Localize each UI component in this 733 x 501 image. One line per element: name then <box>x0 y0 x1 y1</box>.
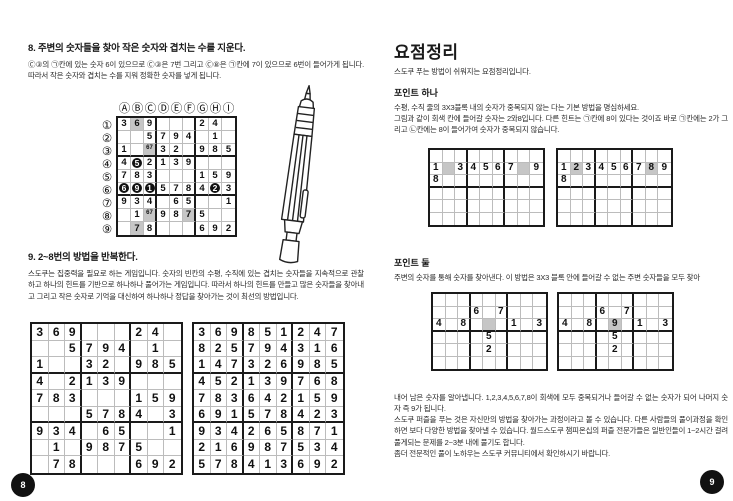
sudoku-cell: 5 <box>131 440 148 457</box>
sudoku-cell: 8 <box>310 357 327 374</box>
sudoku-cell <box>496 332 509 345</box>
point1-line1: 수평, 수직 줄의 3X3블록 내의 숫자가 중복되지 않는 다는 기본 방법을… <box>394 102 728 113</box>
sudoku-cell: 6 <box>621 163 634 176</box>
sudoku-cell <box>533 332 546 345</box>
sudoku-cell <box>533 294 546 307</box>
sudoku-cell: 6 <box>98 423 115 440</box>
sudoku-cell: 4 <box>148 324 165 341</box>
sudoku-cell <box>446 294 459 307</box>
sudoku-cell <box>633 200 646 213</box>
sudoku-cell <box>572 332 585 345</box>
sudoku-cell: 1 <box>148 341 165 358</box>
sudoku-cell: 8 <box>194 341 211 358</box>
sudoku-cell <box>82 324 99 341</box>
sudoku-cell: 4 <box>227 423 244 440</box>
sudoku-cell: 6 <box>211 324 228 341</box>
sudoku-cell <box>583 213 596 226</box>
sudoku-cell <box>658 150 671 163</box>
sudoku-cell: 9 <box>260 341 277 358</box>
sudoku-cell <box>98 456 115 473</box>
sudoku-cell <box>558 213 571 226</box>
sudoku-cell <box>118 131 131 144</box>
sudoku-cell: 4 <box>32 374 49 391</box>
sudoku-cell <box>621 213 634 226</box>
sudoku-cell <box>508 357 521 370</box>
sudoku-cell <box>32 341 49 358</box>
sudoku-cell: 8 <box>49 390 66 407</box>
sudoku-cell <box>559 307 572 320</box>
solved-number-disc: 6 <box>119 183 129 193</box>
sudoku-cell <box>584 294 597 307</box>
sudoku-cell <box>82 423 99 440</box>
sudoku-cell: 7 <box>32 390 49 407</box>
sudoku-cell <box>647 307 660 320</box>
sudoku-cell: 5 <box>260 324 277 341</box>
sudoku-cell <box>634 294 647 307</box>
sudoku-cell: 6 <box>471 307 484 320</box>
sudoku-cell: 4 <box>211 357 228 374</box>
sudoku-cell: 3 <box>277 456 294 473</box>
sudoku-cell <box>32 440 49 457</box>
sudoku-cell: 6 <box>277 357 294 374</box>
sudoku-cell <box>433 357 446 370</box>
sudoku-cell <box>533 357 546 370</box>
sudoku-cell <box>608 188 621 201</box>
sudoku-cell: 3 <box>583 163 596 176</box>
sudoku-cell <box>98 390 115 407</box>
sudoku-cell: 2 <box>98 357 115 374</box>
sudoku-cell <box>157 222 170 235</box>
sudoku-cell <box>455 200 468 213</box>
sudoku-cell: 8 <box>293 423 310 440</box>
sudoku-cell: 6 <box>131 456 148 473</box>
sudoku-cell <box>647 294 660 307</box>
sudoku-cell: 1 <box>634 319 647 332</box>
sudoku-cell <box>596 188 609 201</box>
sudoku-cell <box>508 344 521 357</box>
sudoku-cell <box>508 294 521 307</box>
sudoku-cell <box>609 307 622 320</box>
sudoku-cell <box>433 332 446 345</box>
sudoku-cell <box>521 307 534 320</box>
sudoku-cell: 1 <box>131 390 148 407</box>
sudoku-cell: 8 <box>211 390 228 407</box>
sudoku-cell <box>596 175 609 188</box>
sudoku-cell: 4 <box>115 341 132 358</box>
sudoku-cell <box>115 390 132 407</box>
sudoku-cell <box>148 440 165 457</box>
sudoku-cell: 7 <box>310 423 327 440</box>
sudoku-cell <box>443 163 456 176</box>
sudoku-cell: 9 <box>530 163 543 176</box>
sudoku-cell <box>634 344 647 357</box>
sudoku-cell <box>49 407 66 424</box>
sudoku-cell <box>572 344 585 357</box>
sudoku-cell <box>621 150 634 163</box>
sudoku-cell <box>82 390 99 407</box>
sudoku-cell <box>65 357 82 374</box>
sudoku-cell: 5 <box>211 374 228 391</box>
sudoku-cell: 4 <box>183 131 196 144</box>
sudoku-cell <box>597 294 610 307</box>
sudoku-cell: 2 <box>164 456 181 473</box>
sudoku-cell <box>518 175 531 188</box>
sudoku-cell: 8 <box>244 324 261 341</box>
sudoku-cell: 7 <box>260 407 277 424</box>
sudoku-cell: 5 <box>293 440 310 457</box>
sudoku-cell <box>572 319 585 332</box>
sudoku-cell <box>608 150 621 163</box>
sudoku-cell <box>49 357 66 374</box>
sudoku-cell <box>446 319 459 332</box>
sudoku-cell: 5 <box>277 423 294 440</box>
sudoku-cell <box>131 341 148 358</box>
sudoku-cell: 5 <box>227 341 244 358</box>
sudoku-cell: 1 <box>277 324 294 341</box>
sudoku-cell: 1 <box>49 440 66 457</box>
sudoku-cell: 7 <box>115 440 132 457</box>
sudoku-cell <box>458 357 471 370</box>
sudoku-cell <box>559 357 572 370</box>
pencil-illustration <box>246 83 350 269</box>
sudoku-cell: 9 <box>148 456 165 473</box>
row-header: ⑨ <box>100 222 114 235</box>
sudoku-cell: 9 <box>196 144 209 157</box>
sudoku-cell: 9 <box>115 374 132 391</box>
practice-puzzle-grid: 3692457941132985421397831595784393465119… <box>30 322 183 475</box>
sudoku-cell: 6 <box>170 196 183 209</box>
sudoku-cell <box>118 209 131 222</box>
sudoku-cell: 9 <box>194 423 211 440</box>
sudoku-cell <box>183 222 196 235</box>
sudoku-cell <box>148 407 165 424</box>
sudoku-cell: 4 <box>293 407 310 424</box>
sudoku-cell: 4 <box>260 390 277 407</box>
row-header: ③ <box>100 144 114 157</box>
sudoku-cell <box>518 150 531 163</box>
sudoku-cell: 2 <box>131 324 148 341</box>
sudoku-cell: 3 <box>164 407 181 424</box>
sudoku-cell: 3 <box>131 196 144 209</box>
sudoku-cell <box>115 324 132 341</box>
sudoku-cell: 1 <box>157 157 170 170</box>
sudoku-cell <box>480 150 493 163</box>
sudoku-cell <box>622 332 635 345</box>
sudoku-cell <box>433 344 446 357</box>
sudoku-cell <box>468 175 481 188</box>
sudoku-cell <box>493 213 506 226</box>
sudoku-cell: 9 <box>164 390 181 407</box>
sudoku-cell: 6 <box>196 222 209 235</box>
sudoku-cell: 1 <box>222 196 235 209</box>
pencil-mark: 67 <box>144 210 155 216</box>
sudoku-cell: 4 <box>118 157 131 170</box>
section9-heading: 9. 2~8번의 방법을 반복한다. <box>28 249 138 263</box>
sudoku-cell: 8 <box>115 407 132 424</box>
sudoku-cell <box>583 200 596 213</box>
sudoku-cell <box>518 200 531 213</box>
sudoku-cell: 8 <box>326 374 343 391</box>
sudoku-cell: 2 <box>222 222 235 235</box>
sudoku-cell: 9 <box>144 118 157 131</box>
sudoku-cell <box>521 332 534 345</box>
sudoku-cell <box>646 175 659 188</box>
solution-grid-table: 3698512478257943161473269854521397687836… <box>192 322 345 475</box>
sudoku-cell <box>209 196 222 209</box>
sudoku-cell: 4 <box>131 407 148 424</box>
sudoku-cell: 9 <box>326 390 343 407</box>
sudoku-cell <box>521 357 534 370</box>
grid-column-headers: ⒶⒷⒸⒹⒺⒻⒼⒽⒾ <box>116 103 237 115</box>
sudoku-cell <box>530 213 543 226</box>
sudoku-cell <box>596 213 609 226</box>
sudoku-cell: 1 <box>196 170 209 183</box>
sudoku-cell: 8 <box>277 407 294 424</box>
sudoku-cell <box>633 175 646 188</box>
sudoku-cell: 7 <box>227 357 244 374</box>
point1-grid-after: 1234567898 <box>556 148 673 227</box>
sudoku-cell: 9 <box>277 374 294 391</box>
sudoku-cell: 3 <box>310 440 327 457</box>
column-header: Ⓖ <box>196 103 209 115</box>
sudoku-cell: 8 <box>209 144 222 157</box>
sudoku-cell <box>32 407 49 424</box>
row-header: ② <box>100 131 114 144</box>
sudoku-cell <box>446 307 459 320</box>
sudoku-cell: 9 <box>211 407 228 424</box>
sudoku-cell: 9 <box>98 341 115 358</box>
column-header: Ⓓ <box>157 103 170 115</box>
sudoku-cell: 1 <box>244 374 261 391</box>
sudoku-cell <box>621 188 634 201</box>
sudoku-cell <box>505 188 518 201</box>
sudoku-cell: 9 <box>209 222 222 235</box>
sudoku-cell: 3 <box>82 357 99 374</box>
point2-body: 주변의 숫자를 통해 숫자를 찾아낸다. 이 방법은 3X3 블록 안에 들어갈… <box>394 272 728 283</box>
sudoku-cell <box>446 357 459 370</box>
sudoku-cell <box>493 175 506 188</box>
sudoku-cell: 1 <box>131 209 144 222</box>
point2-grid-after-table: 674891352 <box>557 292 674 371</box>
sudoku-cell: 3 <box>32 324 49 341</box>
sudoku-cell <box>608 175 621 188</box>
sudoku-cell: 2 <box>609 344 622 357</box>
sudoku-cell <box>646 213 659 226</box>
sudoku-cell: 8 <box>584 319 597 332</box>
sudoku-cell <box>646 150 659 163</box>
sudoku-cell <box>496 344 509 357</box>
sudoku-cell: 6 <box>293 456 310 473</box>
sudoku-cell <box>170 222 183 235</box>
sudoku-cell: 4 <box>194 374 211 391</box>
sudoku-cell <box>505 150 518 163</box>
sudoku-cell: 5 <box>164 357 181 374</box>
sudoku-cell <box>468 150 481 163</box>
sudoku-cell <box>222 131 235 144</box>
sudoku-cell <box>480 213 493 226</box>
sudoku-cell <box>458 294 471 307</box>
sudoku-cell: 9 <box>131 183 144 196</box>
sudoku-cell <box>480 200 493 213</box>
sudoku-cell: 1 <box>260 456 277 473</box>
point2-grid-after: 674891352 <box>557 292 674 371</box>
sudoku-cell: 9 <box>131 357 148 374</box>
sudoku-cell <box>647 344 660 357</box>
sudoku-cell: 6 <box>227 440 244 457</box>
sudoku-cell <box>646 188 659 201</box>
sudoku-cell <box>458 332 471 345</box>
sudoku-cell <box>115 456 132 473</box>
sudoku-cell <box>518 213 531 226</box>
solution-grid: 3698512478257943161473269854521397687836… <box>192 322 345 475</box>
sudoku-cell <box>521 294 534 307</box>
sudoku-cell: 2 <box>196 118 209 131</box>
sudoku-cell <box>659 357 672 370</box>
sudoku-cell <box>458 307 471 320</box>
sudoku-cell <box>597 319 610 332</box>
pencil-mark: 67 <box>144 145 155 151</box>
sudoku-cell <box>622 357 635 370</box>
closing-paragraph-2: 스도쿠 퍼즐을 푸는 것은 자신만의 방법을 찾아가는 과정이라고 볼 수 있습… <box>394 414 728 448</box>
sudoku-cell <box>508 307 521 320</box>
sudoku-cell: 2 <box>326 456 343 473</box>
sudoku-cell <box>468 213 481 226</box>
sudoku-cell <box>183 144 196 157</box>
sudoku-cell <box>446 332 459 345</box>
sudoku-cell: 2 <box>277 390 294 407</box>
sudoku-cell: 5 <box>609 332 622 345</box>
sudoku-cell <box>164 324 181 341</box>
sudoku-cell <box>505 175 518 188</box>
sudoku-cell: 7 <box>622 307 635 320</box>
sudoku-cell <box>634 307 647 320</box>
sudoku-cell <box>183 118 196 131</box>
section8-body: Ⓒ③의 ㉠칸에 있는 숫자 6이 있으므로 Ⓒ③은 7번 그리고 Ⓒ⑧은 ㉠칸에… <box>28 59 364 82</box>
labeled-example-grid-table: 3692457941167329854521397831596915784239… <box>116 116 237 237</box>
point1-grid-before-table: 13456798 <box>428 148 545 227</box>
sudoku-cell: 2 <box>227 374 244 391</box>
sudoku-cell <box>131 374 148 391</box>
solved-number-disc: 9 <box>132 183 142 193</box>
sudoku-cell <box>659 344 672 357</box>
sudoku-cell <box>533 344 546 357</box>
sudoku-cell <box>647 357 660 370</box>
sudoku-cell: 9 <box>157 209 170 222</box>
closing-paragraph-3: 좀더 전문적인 풀이 노하우는 스도쿠 커뮤니티에서 확인하시기 바랍니다. <box>394 448 728 459</box>
sudoku-cell <box>658 213 671 226</box>
practice-puzzle-grid-table: 3692457941132985421397831595784393465119… <box>30 322 183 475</box>
column-header: Ⓔ <box>170 103 183 115</box>
sudoku-cell <box>518 163 531 176</box>
sudoku-cell: 1 <box>194 357 211 374</box>
sudoku-cell: 3 <box>326 407 343 424</box>
sudoku-cell <box>521 319 534 332</box>
sudoku-cell: 7 <box>194 390 211 407</box>
sudoku-cell <box>471 332 484 345</box>
sudoku-cell <box>658 200 671 213</box>
sudoku-cell <box>131 423 148 440</box>
sudoku-cell: 6 <box>244 390 261 407</box>
sudoku-cell: 1 <box>326 423 343 440</box>
sudoku-cell <box>559 294 572 307</box>
sudoku-cell <box>32 456 49 473</box>
sudoku-cell: 4 <box>144 196 157 209</box>
sudoku-cell: 4 <box>65 423 82 440</box>
sudoku-cell <box>571 150 584 163</box>
sudoku-cell <box>521 344 534 357</box>
sudoku-cell: 5 <box>194 456 211 473</box>
sudoku-cell: 8 <box>558 175 571 188</box>
sudoku-cell: 1 <box>82 374 99 391</box>
sudoku-cell <box>530 150 543 163</box>
sudoku-cell <box>572 294 585 307</box>
sudoku-cell: 8 <box>148 357 165 374</box>
sudoku-cell: 7 <box>118 170 131 183</box>
sudoku-cell <box>170 118 183 131</box>
sudoku-cell <box>98 324 115 341</box>
sudoku-cell: 9 <box>82 440 99 457</box>
sudoku-cell: 1 <box>164 423 181 440</box>
sudoku-cell <box>118 222 131 235</box>
sudoku-cell: 3 <box>144 170 157 183</box>
sudoku-cell: 2 <box>65 374 82 391</box>
sudoku-cell <box>634 332 647 345</box>
sudoku-cell <box>433 294 446 307</box>
sudoku-cell: 9 <box>32 423 49 440</box>
sudoku-cell: 1 <box>227 407 244 424</box>
sudoku-cell <box>471 357 484 370</box>
sudoku-cell: 4 <box>310 324 327 341</box>
sudoku-cell <box>633 213 646 226</box>
sudoku-cell <box>496 294 509 307</box>
sudoku-cell <box>533 307 546 320</box>
sudoku-cell <box>571 188 584 201</box>
point2-heading: 포인트 둘 <box>394 256 430 269</box>
sudoku-cell: 3 <box>659 319 672 332</box>
sudoku-cell: 5 <box>144 131 157 144</box>
row-header: ⑤ <box>100 170 114 183</box>
sudoku-cell: 1 <box>293 390 310 407</box>
sudoku-cell: 9 <box>170 131 183 144</box>
sudoku-cell: 8 <box>131 170 144 183</box>
sudoku-cell <box>209 157 222 170</box>
sudoku-cell: 8 <box>430 175 443 188</box>
sudoku-cell: 1 <box>32 357 49 374</box>
sudoku-cell <box>483 294 496 307</box>
sudoku-cell <box>196 157 209 170</box>
sudoku-cell: 5 <box>157 183 170 196</box>
sudoku-cell <box>222 157 235 170</box>
sudoku-cell <box>455 150 468 163</box>
sudoku-cell: 9 <box>293 357 310 374</box>
sudoku-cell <box>209 209 222 222</box>
sudoku-cell <box>530 188 543 201</box>
sudoku-cell: 2 <box>170 144 183 157</box>
sudoku-cell: 9 <box>65 324 82 341</box>
sudoku-cell <box>608 213 621 226</box>
sudoku-cell <box>647 319 660 332</box>
sudoku-cell: 1 <box>558 163 571 176</box>
sudoku-cell: 4 <box>468 163 481 176</box>
sudoku-cell: 7 <box>157 131 170 144</box>
sudoku-cell: 3 <box>157 144 170 157</box>
sudoku-cell: 3 <box>244 357 261 374</box>
sudoku-cell: 2 <box>483 344 496 357</box>
sudoku-cell: 3 <box>170 157 183 170</box>
column-header: Ⓘ <box>222 103 235 115</box>
sudoku-cell: 1 <box>144 183 157 196</box>
sudoku-cell: 7 <box>496 307 509 320</box>
